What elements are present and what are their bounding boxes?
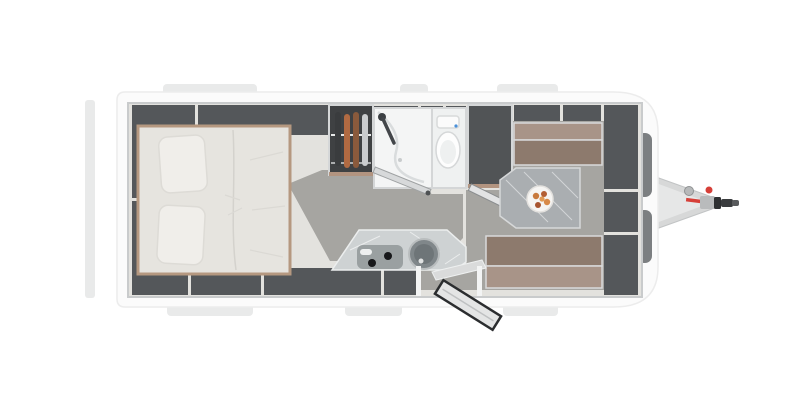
rear-bumper <box>85 100 95 298</box>
bench-bottom-backrest <box>486 266 602 288</box>
pillow-bottom <box>157 205 206 265</box>
hob-knob-1-icon <box>368 259 376 267</box>
sink-basin <box>414 244 434 264</box>
faucet-icon <box>419 259 424 264</box>
food-5 <box>539 196 544 201</box>
bench-bottom-seat <box>486 236 602 266</box>
door-post-left <box>416 266 421 296</box>
caravan-floorplan: WEINSBERG <box>0 0 800 400</box>
food-4 <box>535 202 541 208</box>
locker-dinette-2 <box>563 105 601 121</box>
bench-top-backrest <box>514 123 602 140</box>
pillow-top <box>158 134 208 193</box>
shower-drain <box>398 158 402 162</box>
hanger-dark-icon <box>335 112 341 166</box>
jockey-wheel-crank <box>685 187 694 196</box>
drawbar-hitch <box>656 177 739 229</box>
toilet-room <box>432 108 466 188</box>
bench-top-seat <box>514 140 602 165</box>
coupling-ball-socket <box>732 200 739 206</box>
locker-bottom-4 <box>384 268 417 295</box>
wardrobe-trim <box>329 172 373 176</box>
cabinet-top <box>468 105 512 187</box>
door-handle-icon <box>426 191 431 196</box>
coupling-head <box>714 197 721 209</box>
hanger-copper2-icon <box>353 112 359 168</box>
hob-knob-2-icon <box>384 252 392 260</box>
interior <box>128 103 642 330</box>
toilet-seat <box>440 140 456 164</box>
hanger-silver-icon <box>362 114 368 166</box>
locker-dinette-1 <box>514 105 560 121</box>
door-post-right <box>477 266 482 296</box>
locker-front-lower <box>604 235 638 295</box>
food-1 <box>533 193 539 199</box>
double-bed <box>138 126 290 274</box>
red-knob <box>706 187 713 194</box>
food-2 <box>541 191 547 197</box>
food-3 <box>544 199 550 205</box>
flush-button <box>454 124 457 127</box>
coupling-neck <box>721 199 733 207</box>
locker-front-upper <box>604 105 638 189</box>
hanger-copper-icon <box>344 114 350 168</box>
floorplan-canvas: WEINSBERG <box>0 0 800 400</box>
hob-panel <box>357 245 403 269</box>
locker-front-mid <box>604 192 638 232</box>
igniter <box>360 249 372 255</box>
wardrobe <box>329 105 373 176</box>
coupling-housing <box>700 196 715 209</box>
